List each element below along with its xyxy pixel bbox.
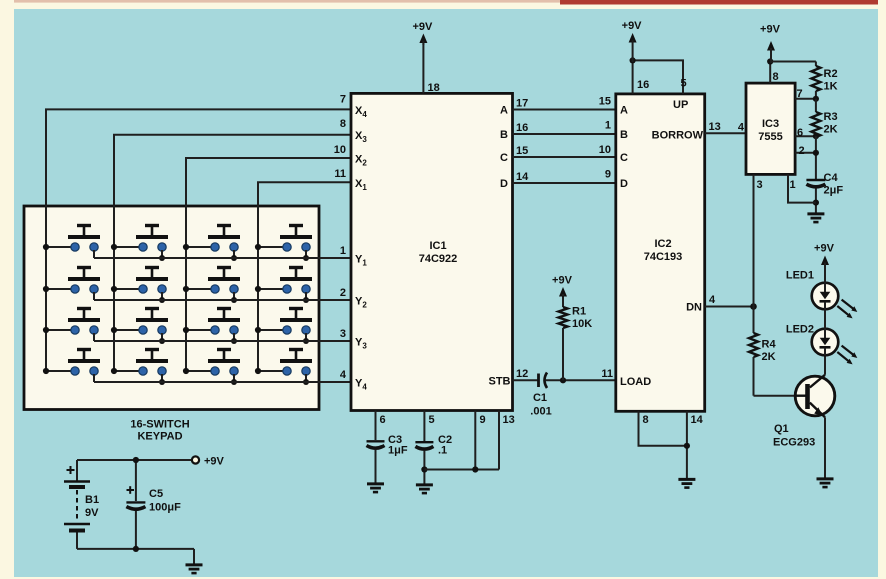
svg-text:1μF: 1μF (388, 445, 408, 457)
svg-text:7555: 7555 (758, 131, 782, 143)
svg-text:6: 6 (380, 414, 386, 426)
svg-text:1: 1 (790, 179, 796, 191)
svg-text:B: B (620, 129, 628, 141)
svg-text:LED1: LED1 (786, 270, 814, 282)
svg-text:1K: 1K (824, 81, 838, 93)
svg-text:9: 9 (480, 414, 486, 426)
svg-text:7: 7 (797, 88, 803, 100)
svg-text:11: 11 (334, 168, 346, 180)
svg-text:16-SWITCH: 16-SWITCH (130, 419, 189, 431)
svg-text:3: 3 (757, 179, 763, 191)
svg-text:5: 5 (681, 78, 687, 90)
svg-text:D: D (500, 178, 508, 190)
svg-text:14: 14 (516, 171, 529, 183)
svg-text:3: 3 (340, 328, 346, 340)
svg-text:4: 4 (709, 294, 716, 306)
svg-text:ECG293: ECG293 (773, 437, 815, 449)
svg-text:14: 14 (691, 414, 704, 426)
svg-text:8: 8 (773, 71, 779, 83)
svg-text:11: 11 (601, 368, 613, 380)
svg-text:4: 4 (738, 122, 745, 134)
svg-text:+9V: +9V (412, 21, 433, 33)
svg-text:C: C (620, 152, 628, 164)
svg-text:9V: 9V (85, 507, 99, 519)
svg-text:STB: STB (489, 376, 511, 388)
svg-text:74C922: 74C922 (419, 253, 458, 265)
svg-text:15: 15 (516, 145, 528, 157)
svg-text:DN: DN (686, 302, 702, 314)
svg-text:16: 16 (637, 79, 649, 91)
svg-text:+9V: +9V (814, 243, 835, 255)
svg-text:12: 12 (516, 368, 528, 380)
svg-text:18: 18 (428, 82, 440, 94)
svg-text:7: 7 (340, 94, 346, 106)
svg-text:10K: 10K (572, 318, 592, 330)
svg-text:C1: C1 (533, 392, 547, 404)
svg-text:IC1: IC1 (429, 240, 446, 252)
svg-text:6: 6 (797, 127, 803, 139)
svg-text:100μF: 100μF (149, 502, 181, 514)
svg-text:.001: .001 (530, 406, 551, 418)
svg-text:+9V: +9V (622, 20, 643, 32)
svg-text:.1: .1 (438, 445, 447, 457)
svg-text:2μF: 2μF (824, 185, 844, 197)
svg-text:17: 17 (516, 98, 528, 110)
svg-text:A: A (500, 105, 508, 117)
svg-text:LED2: LED2 (786, 324, 814, 336)
svg-text:13: 13 (709, 121, 721, 133)
svg-text:A: A (620, 105, 628, 117)
svg-text:R1: R1 (572, 306, 586, 318)
svg-text:5: 5 (429, 414, 435, 426)
svg-text:4: 4 (340, 369, 347, 381)
svg-text:1: 1 (340, 245, 346, 257)
svg-text:8: 8 (340, 118, 346, 130)
svg-text:B: B (500, 129, 508, 141)
svg-text:+9V: +9V (760, 24, 781, 36)
svg-text:9: 9 (605, 169, 611, 181)
svg-text:1: 1 (605, 120, 611, 132)
svg-text:IC3: IC3 (762, 118, 779, 130)
svg-text:UP: UP (673, 99, 688, 111)
svg-text:15: 15 (599, 96, 611, 108)
svg-text:2K: 2K (824, 124, 838, 136)
svg-text:R2: R2 (824, 68, 838, 80)
svg-text:74C193: 74C193 (644, 251, 683, 263)
svg-text:8: 8 (643, 414, 649, 426)
svg-text:B1: B1 (85, 494, 99, 506)
svg-text:R3: R3 (824, 111, 838, 123)
svg-text:Q1: Q1 (774, 423, 789, 435)
svg-text:IC2: IC2 (654, 238, 671, 250)
svg-text:KEYPAD: KEYPAD (137, 431, 182, 443)
svg-text:C: C (500, 152, 508, 164)
svg-text:13: 13 (503, 414, 515, 426)
svg-text:16: 16 (516, 122, 528, 134)
svg-text:+9V: +9V (204, 456, 225, 468)
svg-text:D: D (620, 178, 628, 190)
svg-text:2: 2 (340, 287, 346, 299)
svg-text:+9V: +9V (552, 275, 573, 287)
svg-text:2K: 2K (762, 351, 776, 363)
svg-text:2: 2 (799, 145, 805, 157)
svg-text:LOAD: LOAD (620, 376, 651, 388)
svg-text:C4: C4 (824, 172, 839, 184)
svg-text:10: 10 (599, 144, 611, 156)
svg-text:C5: C5 (149, 488, 163, 500)
svg-text:10: 10 (334, 144, 346, 156)
svg-text:R4: R4 (762, 339, 777, 351)
svg-text:BORROW: BORROW (652, 130, 704, 142)
